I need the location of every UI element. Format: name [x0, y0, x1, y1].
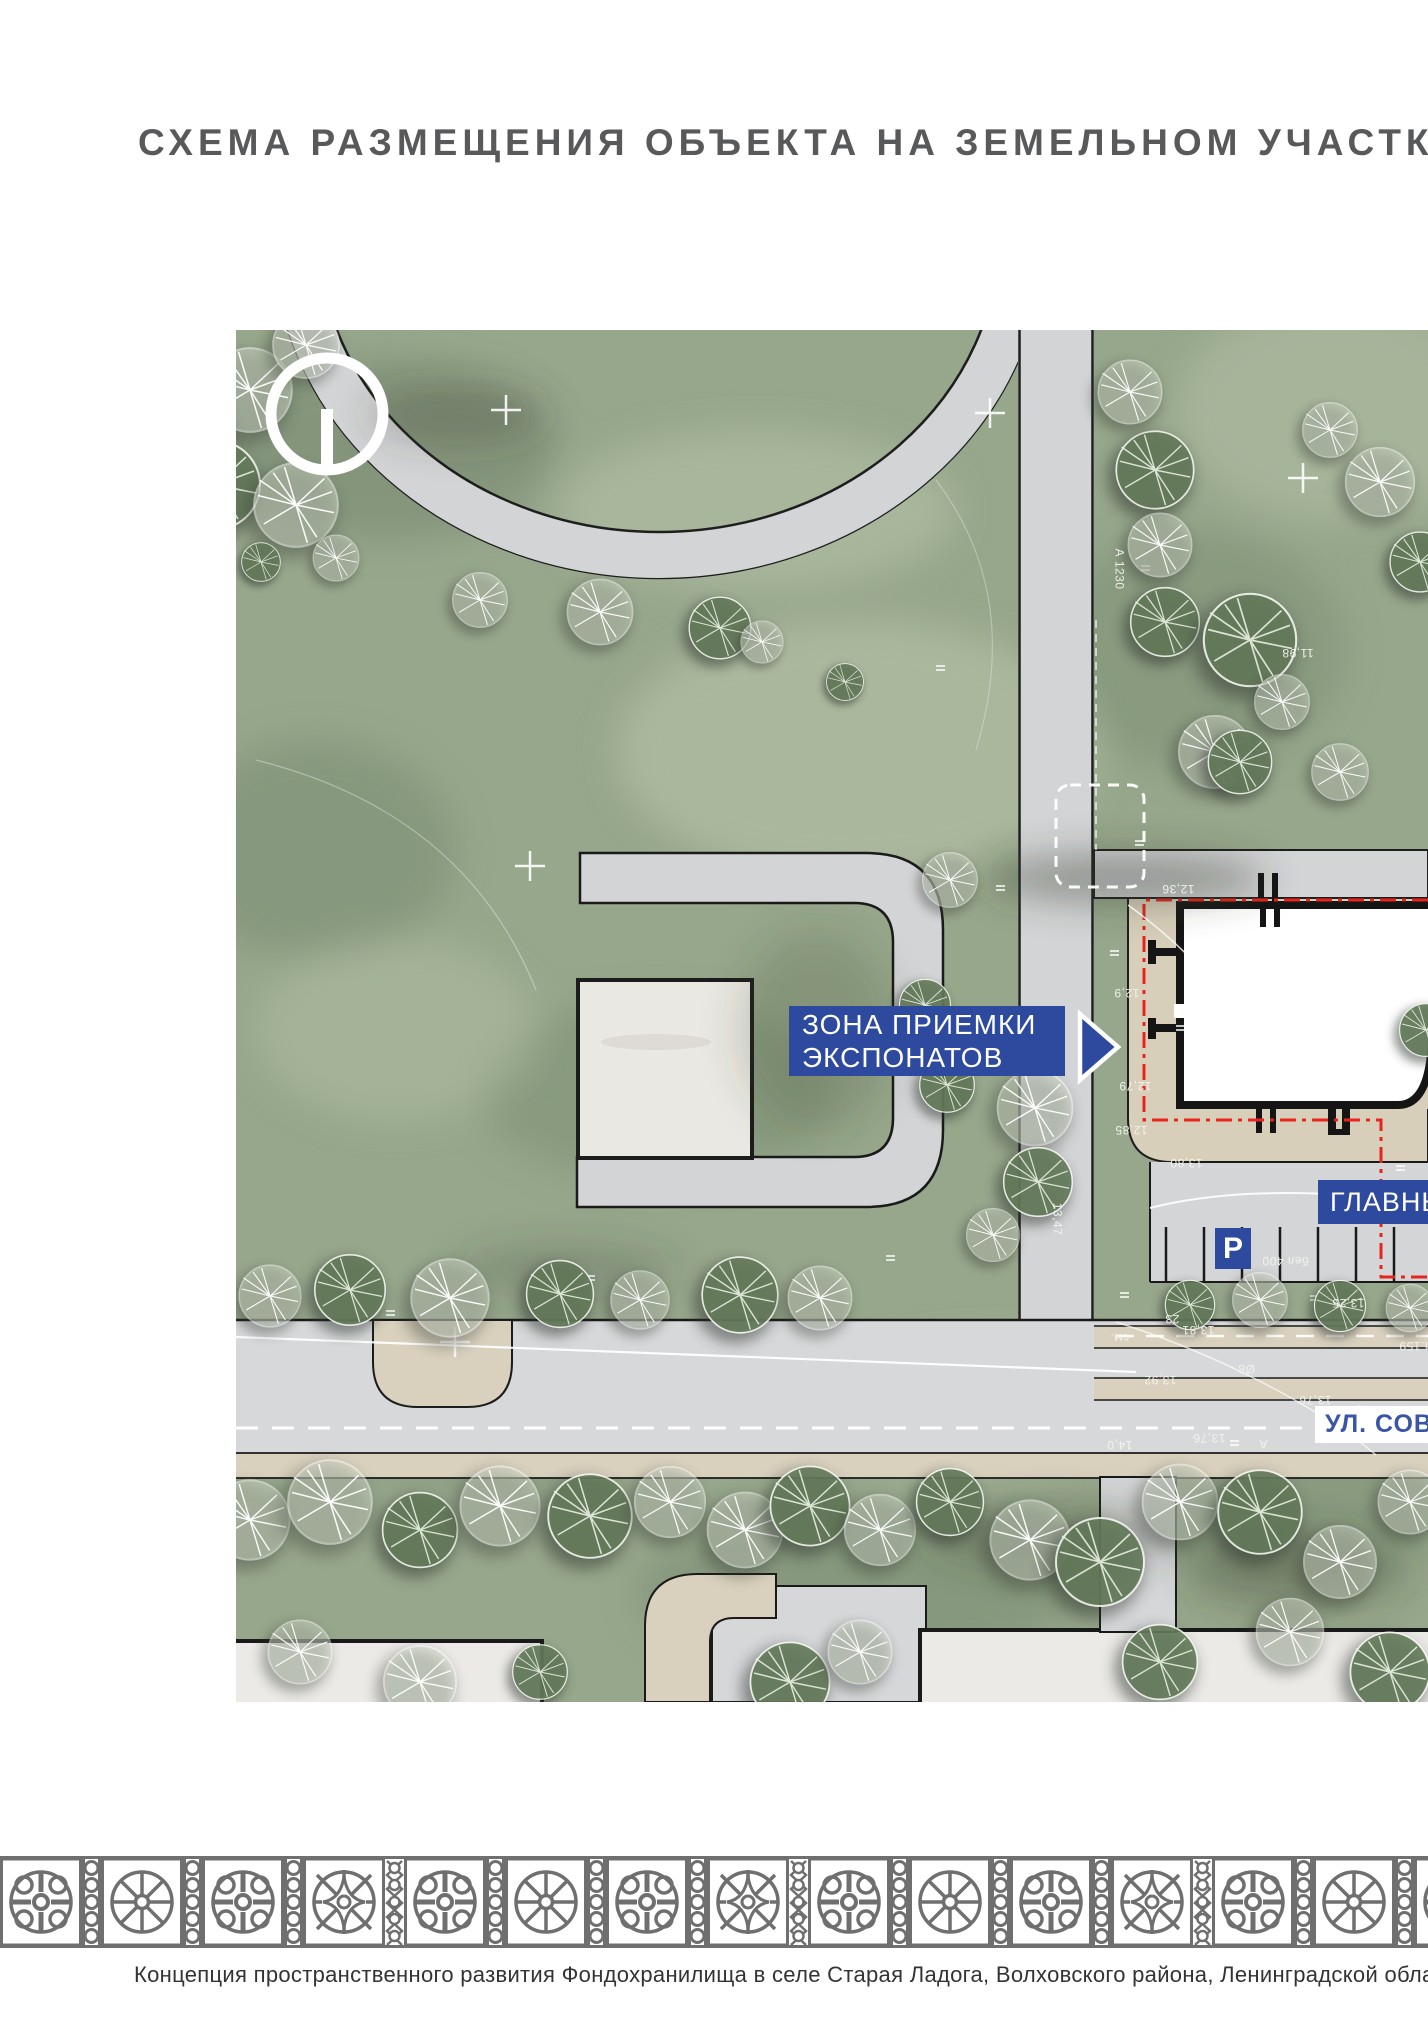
- label-delivery-zone-line1: ЗОНА ПРИЕМКИ: [802, 1008, 1065, 1041]
- document-page: СХЕМА РАЗМЕЩЕНИЯ ОБЪЕКТА НА ЗЕМЕЛЬНОМ УЧ…: [0, 0, 1428, 2018]
- ornament-border: [0, 1856, 1428, 1948]
- label-delivery-zone-line2: ЭКСПОНАТОВ: [802, 1041, 1065, 1074]
- label-street: УЛ. СОВЕТСКАЯ: [1315, 1406, 1428, 1443]
- page-title: СХЕМА РАЗМЕЩЕНИЯ ОБЪЕКТА НА ЗЕМЕЛЬНОМ УЧ…: [138, 122, 1428, 164]
- label-main-entrance: ГЛАВНЫЙ ВХОД: [1318, 1180, 1428, 1224]
- label-delivery-zone: ЗОНА ПРИЕМКИ ЭКСПОНАТОВ: [789, 1006, 1065, 1076]
- parking-sign: Р: [1215, 1228, 1251, 1269]
- caption: Концепция пространственного развития Фон…: [134, 1962, 1428, 1988]
- main-building: [1148, 873, 1428, 1135]
- delivery-building: [578, 980, 752, 1158]
